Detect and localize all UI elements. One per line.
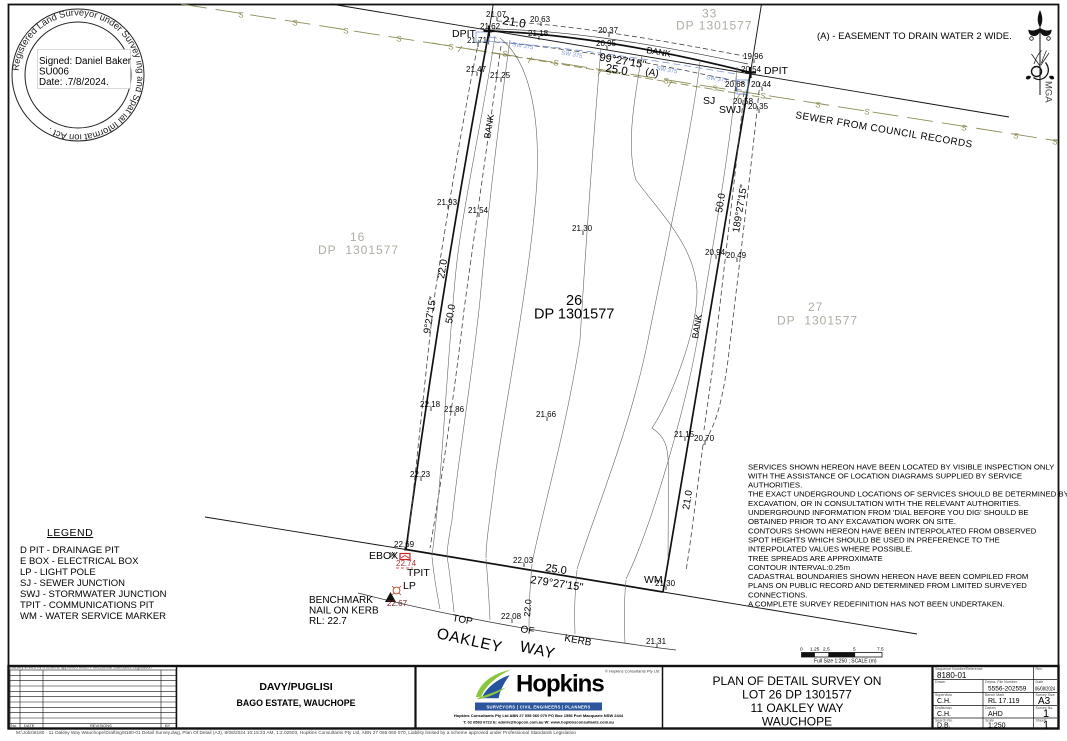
svg-text:TPIT - COMMUNICATIONS PIT: TPIT - COMMUNICATIONS PIT — [20, 600, 154, 611]
svg-text:LP - LIGHT POLE: LP - LIGHT POLE — [20, 567, 96, 578]
svg-text:1: 1 — [1043, 720, 1049, 732]
svg-text:MGA: MGA — [1043, 81, 1054, 103]
svg-text:SJ: SJ — [703, 95, 715, 107]
svg-text:21.86: 21.86 — [444, 405, 465, 414]
svg-text:1:250: 1:250 — [988, 723, 1006, 730]
svg-text:WAUCHOPE: WAUCHOPE — [762, 715, 832, 729]
svg-text:EXCAVATION, OR IN CONSULTATION: EXCAVATION, OR IN CONSULTATION WITH THE … — [748, 499, 1021, 508]
svg-text:22.23: 22.23 — [410, 470, 431, 479]
svg-text:(A) - EASEMENT TO DRAIN WATER: (A) - EASEMENT TO DRAIN WATER 2 WIDE. — [817, 31, 1012, 42]
svg-text:LEGEND: LEGEND — [47, 527, 93, 539]
svg-text:21.15: 21.15 — [674, 430, 695, 439]
svg-text:Rev.: Rev. — [1036, 667, 1043, 671]
svg-text:DATE: DATE — [24, 723, 35, 728]
svg-text:WM: WM — [644, 574, 663, 586]
svg-text:DP 1301577: DP 1301577 — [534, 307, 614, 323]
svg-text:0: 0 — [800, 647, 803, 653]
svg-text:2.5: 2.5 — [823, 647, 830, 653]
svg-text:WITH THE ASSISTANCE OF LOCATIO: WITH THE ASSISTANCE OF LOCATION DIAGRAMS… — [748, 471, 1022, 480]
svg-text:RL: 22.7: RL: 22.7 — [309, 616, 347, 627]
svg-text:19.96: 19.96 — [743, 52, 764, 61]
svg-text:CONNECTIONS.: CONNECTIONS. — [748, 590, 807, 599]
svg-text:T: 02 6583 6722 E: admin@hop: T: 02 6583 6722 E: admin@hopcon.com.au W… — [463, 720, 614, 725]
svg-text:1.25: 1.25 — [810, 647, 820, 653]
svg-text:SURVEYORS | CIVIL ENGINEERS |: SURVEYORS | CIVIL ENGINEERS | PLANNERS — [486, 705, 590, 710]
svg-text:21.47: 21.47 — [466, 65, 487, 74]
svg-text:Drawn: Drawn — [935, 680, 945, 684]
svg-text:A3: A3 — [1038, 696, 1051, 707]
svg-text:Liability limited by a scheme: Liability limited by a scheme approved u… — [10, 665, 152, 670]
svg-text:22.67: 22.67 — [387, 599, 408, 608]
svg-text:21.31: 21.31 — [646, 637, 667, 646]
svg-text:Signed: Daniel Baker: Signed: Daniel Baker — [39, 56, 132, 67]
svg-text:AHD: AHD — [988, 711, 1003, 718]
svg-text:LOT 26 DP 1301577: LOT 26 DP 1301577 — [742, 688, 852, 702]
svg-text:TREE SPREADS ARE APPROXIMATE: TREE SPREADS ARE APPROXIMATE — [748, 554, 883, 563]
svg-text:20.70: 20.70 — [694, 434, 715, 443]
svg-text:© Hopkins Consultants Pty Ltd: © Hopkins Consultants Pty Ltd — [605, 669, 659, 674]
svg-text:11 OAKLEY WAY: 11 OAKLEY WAY — [751, 701, 844, 715]
svg-text:21.62: 21.62 — [480, 22, 501, 31]
svg-text:Full Size 1:250 ; SCALE (m): Full Size 1:250 ; SCALE (m) — [814, 659, 877, 665]
svg-text:(A): (A) — [645, 67, 660, 80]
svg-text:SPOT HEIGHTS WHICH SHOULD BE U: SPOT HEIGHTS WHICH SHOULD BE USED IN PRE… — [748, 536, 1000, 545]
svg-text:D.B.: D.B. — [937, 723, 951, 730]
svg-text:DP 1301577: DP 1301577 — [318, 243, 399, 257]
svg-text:RL 17.119: RL 17.119 — [988, 698, 1020, 705]
svg-text:21.30: 21.30 — [572, 224, 593, 233]
svg-text:22.69: 22.69 — [394, 540, 415, 549]
svg-text:NAIL ON KERB: NAIL ON KERB — [309, 606, 379, 617]
svg-text:Bench Mark: Bench Mark — [985, 693, 1004, 697]
svg-text:TPIT: TPIT — [407, 567, 430, 579]
svg-text:CONTOURS SHOWN HEREON HAVE BEE: CONTOURS SHOWN HEREON HAVE BEEN INTERPOL… — [748, 526, 1037, 535]
svg-text:7.5: 7.5 — [877, 647, 884, 653]
svg-text:20.49: 20.49 — [726, 251, 747, 260]
svg-text:20.63: 20.63 — [530, 15, 551, 24]
svg-text:Hopkins: Hopkins — [516, 671, 604, 698]
svg-text:20.37: 20.37 — [598, 26, 619, 35]
svg-text:Datum: Datum — [985, 706, 996, 710]
svg-text:THE EXACT UNDERGROUND LOCATION: THE EXACT UNDERGROUND LOCATIONS OF SERVI… — [748, 490, 1067, 499]
svg-text:CONTOUR INTERVAL:0.25m: CONTOUR INTERVAL:0.25m — [748, 563, 850, 572]
svg-text:1: 1 — [1043, 708, 1049, 720]
svg-text:20.44: 20.44 — [751, 80, 772, 89]
svg-text:22.03: 22.03 — [513, 556, 534, 565]
svg-text:AUTHORITIES.: AUTHORITIES. — [748, 481, 802, 490]
svg-text:8180-01: 8180-01 — [937, 671, 967, 680]
svg-text:PLAN OF DETAIL SURVEY ON: PLAN OF DETAIL SURVEY ON — [713, 674, 882, 688]
svg-text:20.95: 20.95 — [596, 39, 617, 48]
svg-text:22.0: 22.0 — [522, 599, 533, 617]
svg-text:SJ - SEWER JUNCTION: SJ - SEWER JUNCTION — [20, 578, 125, 589]
svg-text:INTERPOLATED VALUES WHERE POSS: INTERPOLATED VALUES WHERE POSSIBLE. — [748, 545, 913, 554]
svg-text:OBTAINED PRIOR TO ANY EXCAVATI: OBTAINED PRIOR TO ANY EXCAVATION WORK ON… — [748, 517, 956, 526]
svg-text:DPIT: DPIT — [764, 65, 789, 77]
svg-text:16: 16 — [350, 230, 365, 244]
svg-text:BAGO ESTATE, WAUCHOPE: BAGO ESTATE, WAUCHOPE — [237, 698, 356, 708]
svg-text:C.H.: C.H. — [937, 711, 951, 718]
svg-text:20.35: 20.35 — [748, 102, 769, 111]
svg-text:UNDERGROUND INFORMATION FROM ': UNDERGROUND INFORMATION FROM 'DIAL BEFOR… — [748, 508, 1029, 517]
svg-text:E BOX - ELECTRICAL BOX: E BOX - ELECTRICAL BOX — [20, 556, 139, 567]
svg-text:SWJ - STORMWATER JUNCTION: SWJ - STORMWATER JUNCTION — [20, 589, 167, 600]
svg-text:C.H.: C.H. — [937, 698, 951, 705]
svg-text:21.93: 21.93 — [437, 198, 458, 207]
svg-text:Date: Date — [1036, 680, 1044, 684]
svg-text:No.: No. — [11, 723, 17, 728]
svg-text:SU006: SU006 — [39, 67, 70, 78]
svg-text:DPIT: DPIT — [452, 28, 477, 40]
svg-text:A COMPLETE SURVEY REDEFINITION: A COMPLETE SURVEY REDEFINITION HAS NOT B… — [748, 600, 1005, 609]
svg-text:DAVY/PUGLISI: DAVY/PUGLISI — [259, 681, 332, 693]
svg-text:DP 1301577: DP 1301577 — [676, 19, 753, 33]
svg-text:REVISIONS: REVISIONS — [90, 723, 112, 728]
svg-text:SERVICES SHOWN HEREON HAVE BEE: SERVICES SHOWN HEREON HAVE BEEN LOCATED … — [748, 462, 1054, 471]
svg-text:Depos. File Number: Depos. File Number — [985, 680, 1018, 684]
svg-text:21.18: 21.18 — [528, 29, 549, 38]
svg-text:BENCHMARK: BENCHMARK — [309, 595, 373, 606]
svg-text:SWJ: SWJ — [719, 104, 741, 116]
svg-text:Supervisor: Supervisor — [935, 693, 953, 697]
svg-text:21.25: 21.25 — [490, 71, 511, 80]
svg-text:5556-202559: 5556-202559 — [988, 686, 1027, 693]
svg-text:CADASTRAL BOUNDARIES SHOWN HER: CADASTRAL BOUNDARIES SHOWN HEREON HAVE B… — [748, 572, 1028, 581]
svg-text:EBOX: EBOX — [369, 550, 398, 562]
svg-text:06/08/2024: 06/08/2024 — [1035, 687, 1055, 693]
svg-text:22.18: 22.18 — [420, 400, 441, 409]
svg-text:20.94: 20.94 — [705, 248, 726, 257]
svg-text:5: 5 — [853, 647, 856, 653]
svg-text:M:\Jobs\8180 - 11 Oakley Way W: M:\Jobs\8180 - 11 Oakley Way Wauchope\Dr… — [16, 730, 577, 735]
svg-text:LP: LP — [403, 580, 416, 592]
svg-text:21.54: 21.54 — [468, 206, 489, 215]
svg-text:DP 1301577: DP 1301577 — [777, 314, 858, 328]
svg-text:BY: BY — [165, 723, 171, 728]
svg-text:Hopkins Consultants Pty Ltd: Hopkins Consultants Pty Ltd ABN 27 055 0… — [454, 713, 624, 718]
svg-text:20.68: 20.68 — [725, 80, 746, 89]
svg-text:27: 27 — [808, 300, 823, 314]
svg-text:21.66: 21.66 — [536, 410, 557, 419]
svg-text:Date: .7/8/2024.: Date: .7/8/2024. — [39, 77, 109, 88]
svg-text:D PIT - DRAINAGE PIT: D PIT - DRAINAGE PIT — [20, 545, 120, 556]
svg-text:Draftsman: Draftsman — [935, 706, 952, 710]
svg-text:WM - WATER SERVICE MARKER: WM - WATER SERVICE MARKER — [20, 611, 166, 622]
svg-text:PLANS ON PUBLIC RECORD AND DET: PLANS ON PUBLIC RECORD AND DETERMINED FR… — [748, 581, 1027, 590]
svg-text:20.54: 20.54 — [741, 65, 762, 74]
svg-text:22.08: 22.08 — [501, 612, 522, 621]
